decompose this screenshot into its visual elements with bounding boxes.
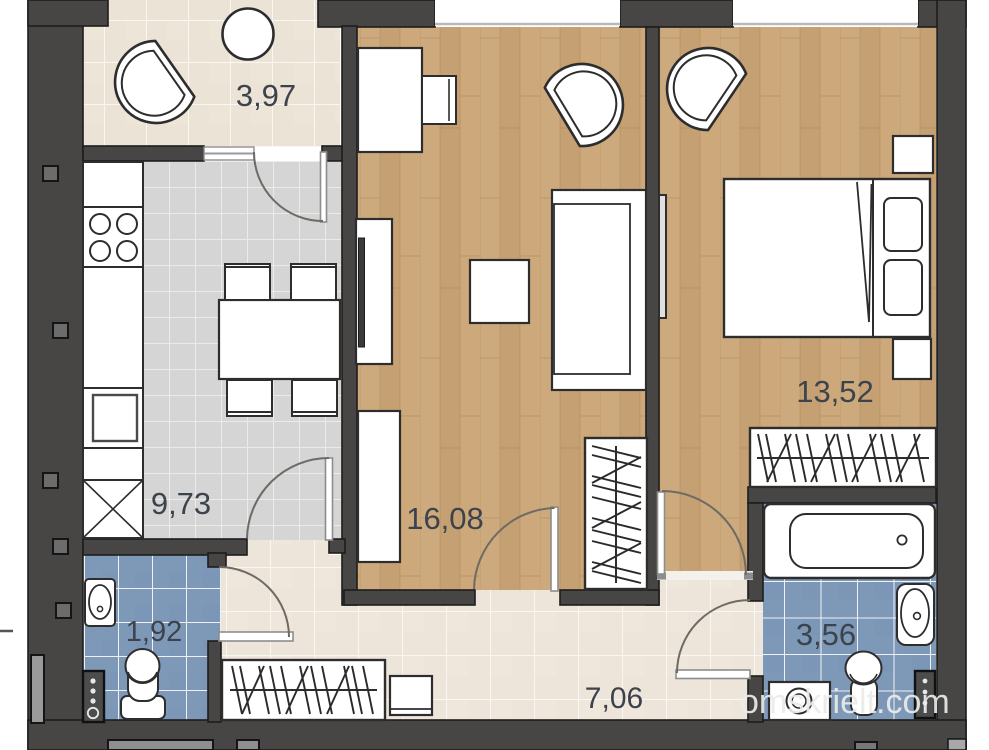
svg-text:1,92: 1,92 — [126, 616, 182, 648]
svg-text:3,97: 3,97 — [236, 78, 296, 113]
svg-text:13,52: 13,52 — [796, 374, 874, 409]
svg-text:7,06: 7,06 — [585, 682, 643, 715]
svg-text:16,08: 16,08 — [406, 501, 484, 536]
svg-text:omskrielt.com: omskrielt.com — [740, 683, 950, 721]
svg-text:9,73: 9,73 — [151, 486, 211, 521]
svg-text:3,56: 3,56 — [796, 617, 856, 652]
